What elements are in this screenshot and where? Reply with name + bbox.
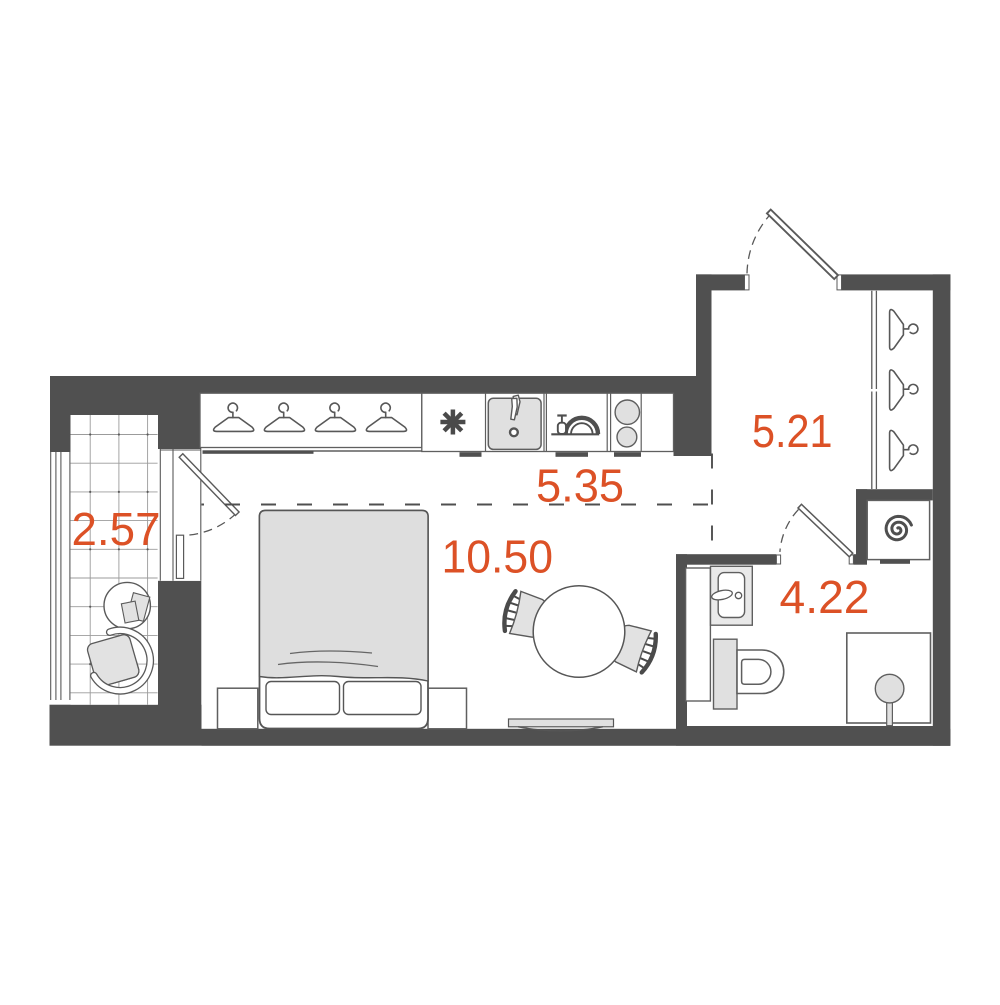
svg-text:10.50: 10.50 (442, 530, 554, 582)
svg-text:5.21: 5.21 (752, 405, 833, 457)
svg-text:4.22: 4.22 (780, 571, 870, 623)
svg-text:5.35: 5.35 (536, 459, 624, 511)
svg-text:2.57: 2.57 (72, 503, 161, 555)
